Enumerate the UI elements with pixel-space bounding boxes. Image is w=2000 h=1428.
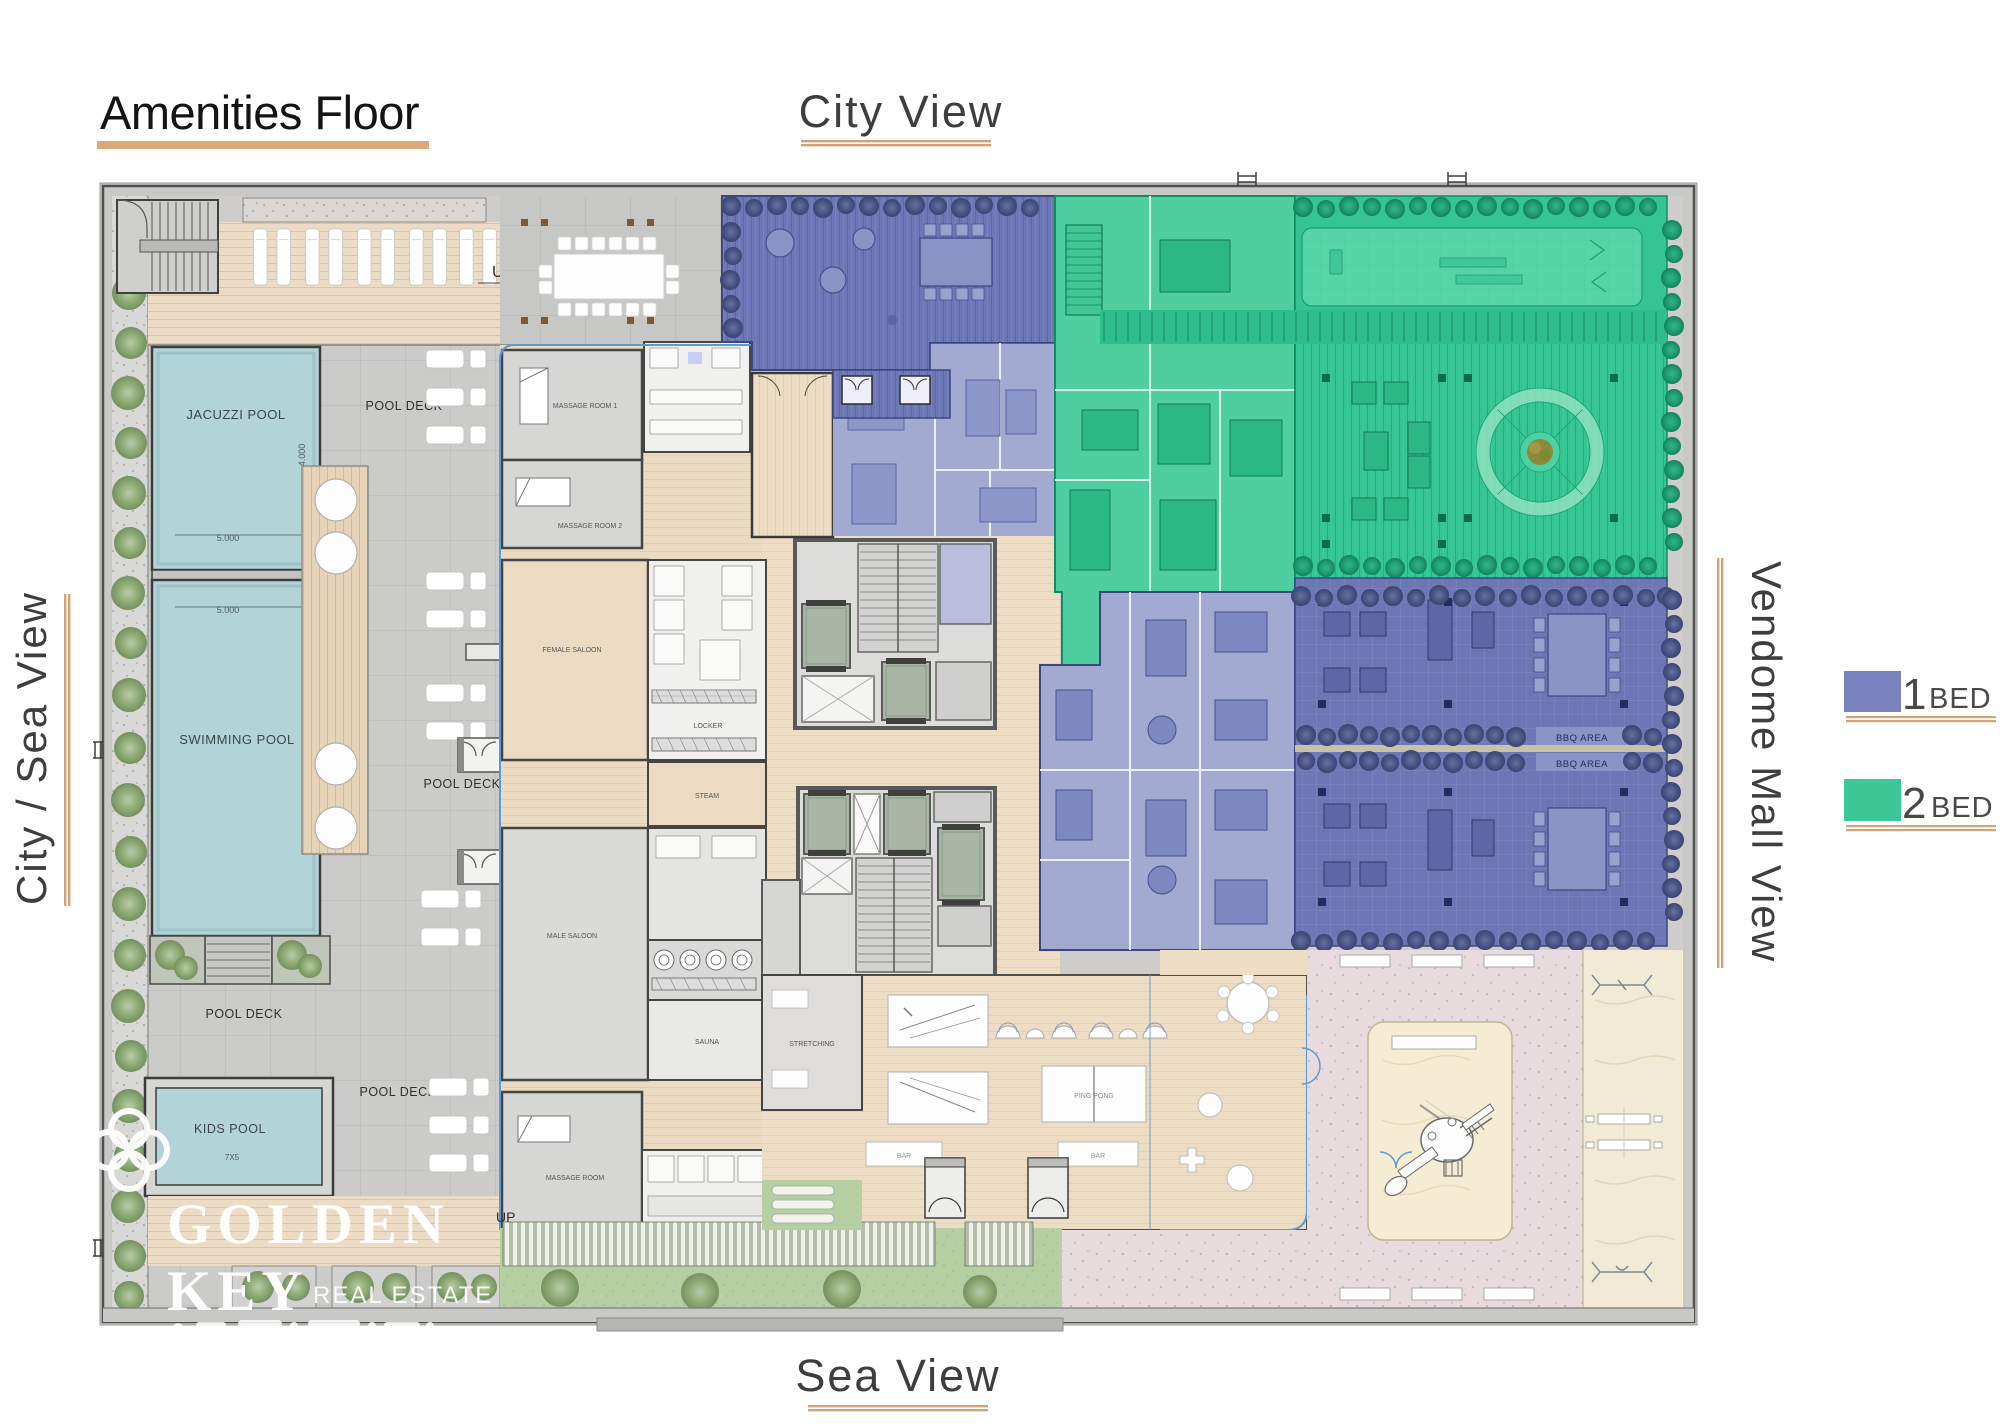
svg-text:MALE SALOON: MALE SALOON xyxy=(547,933,597,940)
svg-text:BBQ AREA: BBQ AREA xyxy=(1556,733,1608,744)
svg-text:City View: City View xyxy=(799,86,1004,137)
svg-text:POOL DECK: POOL DECK xyxy=(360,1085,437,1099)
svg-text:2: 2 xyxy=(1902,779,1926,828)
svg-text:LOCKER: LOCKER xyxy=(694,723,723,730)
svg-text:KIDS POOL: KIDS POOL xyxy=(194,1122,266,1136)
svg-text:MASSAGE ROOM: MASSAGE ROOM xyxy=(546,1175,605,1182)
svg-text:5.000: 5.000 xyxy=(217,533,240,543)
svg-text:Sea View: Sea View xyxy=(795,1350,1000,1401)
svg-text:MASSAGE ROOM 2: MASSAGE ROOM 2 xyxy=(558,523,622,530)
svg-text:SWIMMING POOL: SWIMMING POOL xyxy=(179,732,295,747)
svg-text:POOL DECK: POOL DECK xyxy=(206,1007,283,1021)
svg-text:FEMALE SALOON: FEMALE SALOON xyxy=(542,647,601,654)
svg-text:4.000: 4.000 xyxy=(297,444,307,467)
svg-text:BBQ AREA: BBQ AREA xyxy=(1556,759,1608,770)
svg-text:STEAM: STEAM xyxy=(695,793,719,800)
svg-text:City / Sea View: City / Sea View xyxy=(8,591,55,905)
svg-text:UP: UP xyxy=(496,1209,515,1225)
svg-text:BED: BED xyxy=(1929,683,1992,715)
svg-text:PING PONG: PING PONG xyxy=(1074,1093,1114,1100)
svg-text:JACUZZI POOL: JACUZZI POOL xyxy=(186,407,285,422)
svg-text:KEY: KEY xyxy=(167,1260,309,1323)
svg-text:GOLDEN: GOLDEN xyxy=(167,1193,450,1256)
svg-text:BAR: BAR xyxy=(897,1153,911,1160)
svg-text:Vendome Mall View: Vendome Mall View xyxy=(1743,561,1790,963)
svg-text:MASSAGE ROOM 1: MASSAGE ROOM 1 xyxy=(553,403,617,410)
svg-text:SAUNA: SAUNA xyxy=(695,1039,719,1046)
svg-text:STRETCHING: STRETCHING xyxy=(789,1041,835,1048)
svg-text:REAL ESTATE: REAL ESTATE xyxy=(313,1282,493,1309)
svg-text:7X5: 7X5 xyxy=(225,1153,240,1162)
svg-text:Amenities Floor: Amenities Floor xyxy=(100,86,419,139)
svg-text:5.000: 5.000 xyxy=(217,605,240,615)
svg-text:POOL DECK: POOL DECK xyxy=(424,777,501,791)
svg-text:1: 1 xyxy=(1902,670,1926,719)
svg-text:BED: BED xyxy=(1931,792,1994,824)
svg-text:BAR: BAR xyxy=(1091,1153,1105,1160)
